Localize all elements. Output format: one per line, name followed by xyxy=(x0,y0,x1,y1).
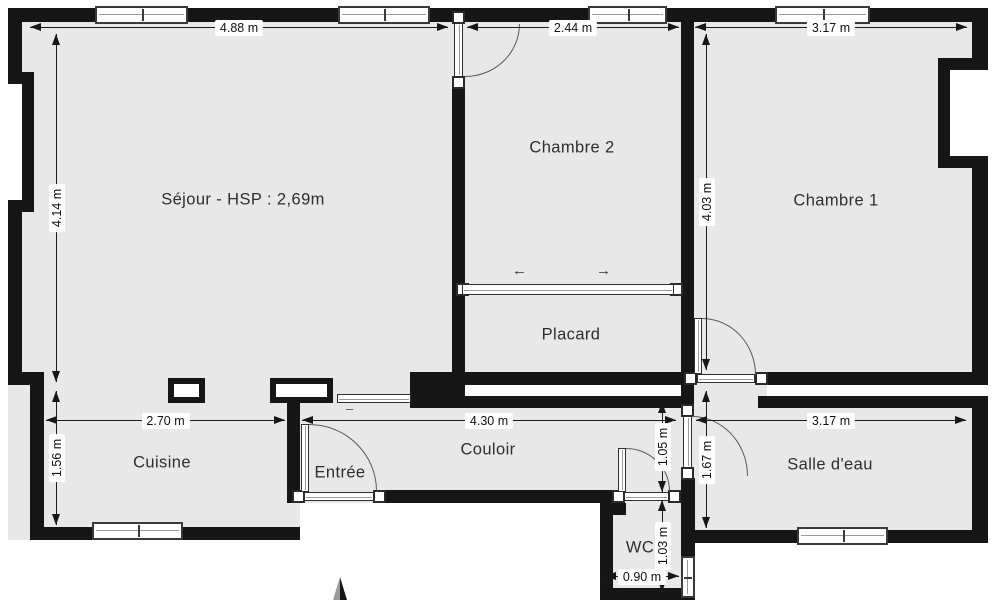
wall-right-notch xyxy=(938,70,950,158)
door-leaf-wc xyxy=(618,448,626,492)
dim-chambre1-height: 4.03 m xyxy=(706,34,707,370)
wall-void-placard xyxy=(465,385,681,396)
room-label-entree: Entrée xyxy=(314,464,365,483)
wall-wc-bottom xyxy=(600,588,694,600)
wall-entree-left xyxy=(287,400,300,503)
dim-label: 1.56 m xyxy=(49,434,65,482)
door-jamb xyxy=(452,76,465,89)
duct-box xyxy=(270,378,333,403)
wall-right-mid xyxy=(972,168,988,385)
facade-recess-left xyxy=(0,84,22,206)
wall-wc-corner-step xyxy=(613,503,626,515)
dim-label: 4.88 m xyxy=(215,20,263,36)
wall-placard-bottom xyxy=(452,372,694,385)
room-label-couloir: Couloir xyxy=(460,441,515,460)
dim-label: 2.44 m xyxy=(549,20,597,36)
dim-sejour-width: 4.88 m xyxy=(30,27,448,28)
dim-cuisine-height: 1.56 m xyxy=(56,391,57,525)
wall-chambre2-chambre1-divider xyxy=(681,8,694,405)
door-leaf-chambre1 xyxy=(694,318,702,374)
door-jamb xyxy=(668,490,681,503)
north-arrow-icon xyxy=(333,577,347,600)
facade-notch-right xyxy=(950,70,992,156)
window-cuisine-bottom xyxy=(92,522,183,540)
wall-void-chambre1 xyxy=(767,385,992,396)
dim-label: 1.03 m xyxy=(655,522,671,570)
door-jamb xyxy=(373,490,386,503)
wall-left-mid xyxy=(8,206,22,385)
dim-label: 1.05 m xyxy=(655,423,671,471)
room-label-wc: WC xyxy=(626,539,654,558)
wall-sejour-chambre2-divider xyxy=(452,89,465,385)
door-leaf-salle-deau xyxy=(683,416,692,468)
wall-right-lower xyxy=(972,398,988,543)
dim-chambre1-width: 3.17 m xyxy=(695,27,967,28)
separator-dash: – xyxy=(346,404,353,414)
dim-cuisine-width: 2.70 m xyxy=(46,420,285,421)
dim-label: 1.67 m xyxy=(699,435,715,483)
wall-chambre1-bottom xyxy=(765,372,972,385)
dim-couloir-width: 1.05 m xyxy=(662,402,663,492)
door-jamb xyxy=(755,372,768,385)
dim-salle-deau-width: 3.17 m xyxy=(696,420,966,421)
room-label-chambre1: Chambre 1 xyxy=(793,192,878,211)
room-label-salle-deau: Salle d'eau xyxy=(787,456,873,475)
wall-right-notch-step-bottom xyxy=(938,156,988,168)
wall-sejour-bottom-step xyxy=(8,372,44,385)
dim-label: 4.14 m xyxy=(49,184,65,232)
room-label-chambre2: Chambre 2 xyxy=(529,139,614,158)
window-wc-right xyxy=(681,556,695,598)
window-sejour-top-right xyxy=(338,6,430,24)
wall-cuisine-left xyxy=(30,385,44,540)
dim-couloir-length: 4.30 m xyxy=(302,420,676,421)
dim-label: 4.03 m xyxy=(699,178,715,226)
window-chambre2-top xyxy=(588,6,667,24)
room-label-cuisine: Cuisine xyxy=(133,454,191,473)
door-leaf-entree xyxy=(301,424,309,492)
wall-right-notch-step-top xyxy=(938,58,988,70)
wall-couloir-bottom xyxy=(383,490,615,503)
dim-sejour-height: 4.14 m xyxy=(56,34,57,382)
dim-label: 3.17 m xyxy=(807,413,855,429)
wall-salle-deau-top xyxy=(758,396,988,408)
window-salle-deau-bottom xyxy=(797,527,888,545)
room-label-sejour: Séjour - HSP : 2,69m xyxy=(161,191,325,210)
pillar-box xyxy=(168,378,205,403)
door-threshold-chambre1 xyxy=(697,374,755,383)
sliding-door-placard xyxy=(462,284,674,295)
dim-salle-deau-height: 1.67 m xyxy=(706,391,707,528)
window-sejour-top-left xyxy=(95,6,188,24)
wall-wc-left xyxy=(600,490,613,600)
floor-plan: ← → – 4.88 m 2.44 m 3.17 m 4.14 m 4.03 m… xyxy=(0,0,992,600)
dim-label: 2.70 m xyxy=(141,413,189,429)
door-leaf-chambre2 xyxy=(454,23,463,77)
dim-wc-width: 0.90 m xyxy=(605,576,679,577)
room-label-placard: Placard xyxy=(542,326,601,345)
dim-label: 4.30 m xyxy=(465,413,513,429)
dim-label: 0.90 m xyxy=(618,569,666,585)
wall-left-recess-step-top xyxy=(8,72,34,84)
slide-right-arrow-icon: → xyxy=(596,264,611,278)
slide-left-arrow-icon: ← xyxy=(512,264,527,278)
door-threshold-entree xyxy=(304,492,374,501)
dim-chambre2-width: 2.44 m xyxy=(467,27,679,28)
wall-left-recess xyxy=(22,84,34,206)
dim-label: 3.17 m xyxy=(807,20,855,36)
